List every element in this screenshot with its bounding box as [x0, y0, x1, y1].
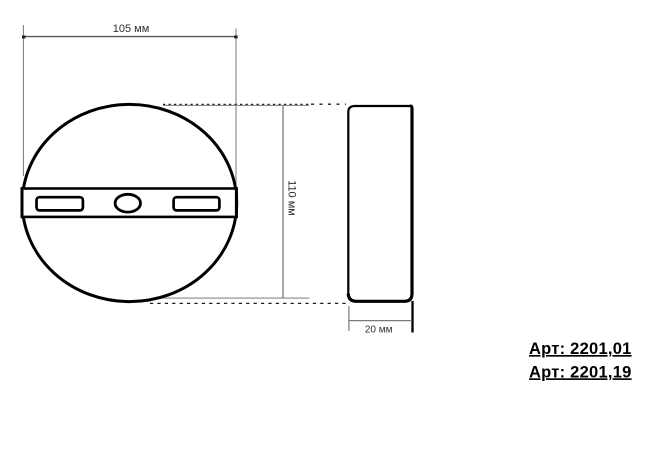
svg-text:110 мм: 110 мм: [286, 180, 298, 216]
svg-text:Арт: 2201,19: Арт: 2201,19: [529, 363, 632, 381]
svg-text:105 мм: 105 мм: [113, 23, 150, 35]
svg-text:20 мм: 20 мм: [365, 325, 393, 336]
svg-text:Арт: 2201,01: Арт: 2201,01: [529, 340, 632, 358]
